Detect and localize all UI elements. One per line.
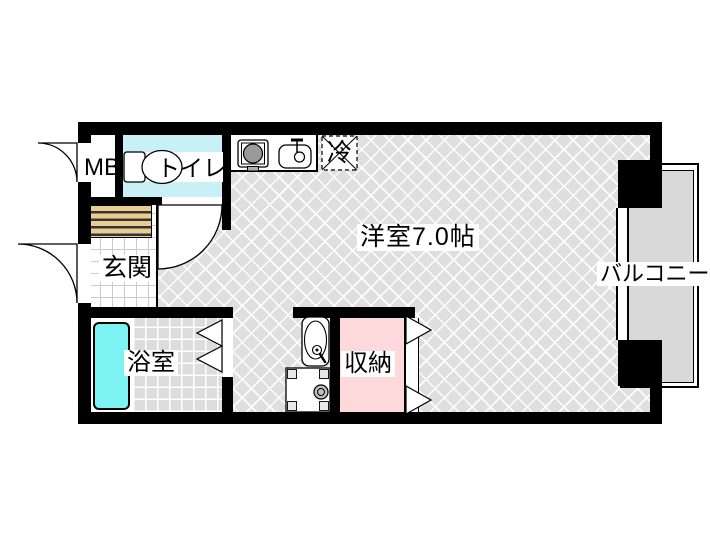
wall-top <box>78 122 662 135</box>
wall-toilet-right <box>222 135 231 230</box>
balcony-wall-lower <box>618 340 662 386</box>
wall-closet-left <box>330 307 340 412</box>
mb-door-swing <box>38 143 77 182</box>
floor-plan: MB トイレ 冷 洋室7.0帖 玄関 浴室 収納 バルコニー <box>0 0 710 550</box>
room-label-balcony: バルコニー <box>597 262 710 286</box>
wall-right-upper <box>650 122 662 168</box>
toilet-door-opening <box>158 197 222 205</box>
room-label-meter-box: MB <box>84 156 120 180</box>
wall-bottom <box>78 412 662 424</box>
entrance-door-opening <box>77 244 91 303</box>
room-label-toilet: トイレ <box>157 157 226 180</box>
wall-bathroom-right <box>222 377 233 412</box>
kitchen-counter <box>230 135 318 172</box>
room-label-western-room: 洋室7.0帖 <box>357 224 479 251</box>
room-label-bathroom: 浴室 <box>124 350 178 376</box>
room-label-entrance: 玄関 <box>99 255 155 282</box>
entrance-door-swing <box>18 244 77 303</box>
closet-door-track <box>404 318 419 412</box>
wall-bathroom-top <box>78 307 233 318</box>
wall-toilet-bottom <box>78 197 162 205</box>
wall-right-lower <box>650 383 662 424</box>
entrance-mat <box>90 205 152 238</box>
room-label-closet: 収納 <box>341 351 395 377</box>
wall-closet-top <box>330 307 415 318</box>
room-label-refrigerator: 冷 <box>327 141 352 166</box>
